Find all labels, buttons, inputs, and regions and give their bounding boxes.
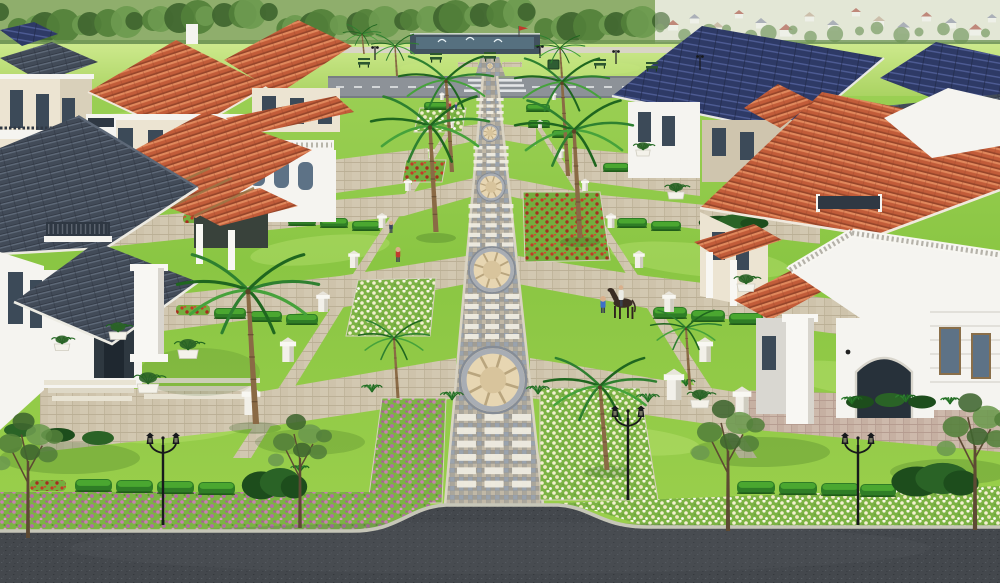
gate-pillar — [664, 369, 684, 400]
window — [638, 112, 651, 142]
walkway-medallion — [477, 173, 505, 201]
window — [762, 336, 776, 370]
foundation-plant — [908, 396, 936, 409]
trimmed-hedge — [198, 482, 235, 495]
window — [10, 90, 23, 128]
walkway-medallion — [469, 247, 515, 293]
walkway-medallion — [487, 63, 494, 70]
gate-pillar — [377, 213, 387, 228]
red-flower-strip — [30, 480, 66, 491]
flower-bed-red — [523, 192, 610, 262]
walkway-medallion — [460, 347, 526, 413]
gate-pillar — [606, 213, 616, 228]
cornice — [0, 74, 94, 79]
wall-lamp — [846, 350, 851, 355]
rider-leg — [620, 299, 623, 307]
trimmed-hedge — [75, 479, 112, 492]
ground-shadow — [560, 237, 600, 247]
balcony-railing — [46, 222, 110, 236]
trimmed-hedge — [651, 221, 681, 231]
trimmed-hedge — [286, 314, 318, 325]
water-feature — [410, 33, 540, 54]
window — [940, 328, 960, 374]
trimmed-hedge — [617, 218, 647, 228]
arched-window — [298, 162, 313, 190]
gate-pillar — [633, 250, 645, 268]
column-shade — [158, 268, 164, 356]
window — [662, 116, 675, 146]
gate-pillar — [733, 386, 752, 415]
utility-box — [548, 60, 559, 69]
gate-pillar — [348, 250, 360, 268]
tree-canopy-blob — [518, 3, 536, 21]
walkway-medallion — [482, 125, 499, 142]
window — [712, 128, 726, 156]
trimmed-hedge — [860, 484, 896, 497]
foundation-bush — [82, 431, 114, 445]
window — [36, 94, 49, 132]
rider-torso — [619, 290, 624, 300]
gate-pillar — [316, 291, 330, 312]
flower-bed-red — [402, 160, 446, 182]
column-base — [130, 354, 168, 362]
gate-pillar — [439, 92, 444, 100]
upper-cross-arm-right — [502, 62, 522, 67]
trimmed-hedge — [779, 482, 817, 495]
tree-canopy-blob — [260, 3, 278, 21]
flower-bed-white — [540, 388, 658, 500]
horse-head — [608, 288, 614, 292]
entry-steps — [44, 380, 136, 401]
tree-canopy-blob — [125, 12, 143, 30]
ground-shadow — [416, 233, 456, 243]
trimmed-hedge — [424, 102, 448, 110]
aerial-render-canvas — [0, 0, 1000, 583]
flower-bed-pink — [368, 398, 446, 503]
balcony-railing — [818, 196, 880, 209]
window — [740, 132, 754, 160]
arch-opening — [856, 358, 912, 418]
trimmed-hedge — [821, 483, 859, 496]
pergola-column — [228, 230, 235, 270]
gate-pillar — [581, 179, 589, 191]
porch-column — [706, 252, 713, 298]
gate-pillar — [404, 179, 412, 191]
window — [972, 334, 990, 378]
trimmed-hedge — [116, 480, 153, 493]
community-aerial-render — [0, 0, 1000, 583]
chimney — [186, 24, 198, 44]
trimmed-hedge — [603, 163, 629, 172]
column-shade — [808, 318, 814, 424]
balcony-ledge — [44, 236, 112, 242]
gate-pillar — [280, 337, 296, 362]
flower-bed-white — [346, 278, 436, 336]
trimmed-hedge — [737, 481, 775, 494]
rider-head — [619, 285, 623, 289]
gate-pillar — [662, 291, 676, 312]
trimmed-hedge — [352, 221, 380, 231]
